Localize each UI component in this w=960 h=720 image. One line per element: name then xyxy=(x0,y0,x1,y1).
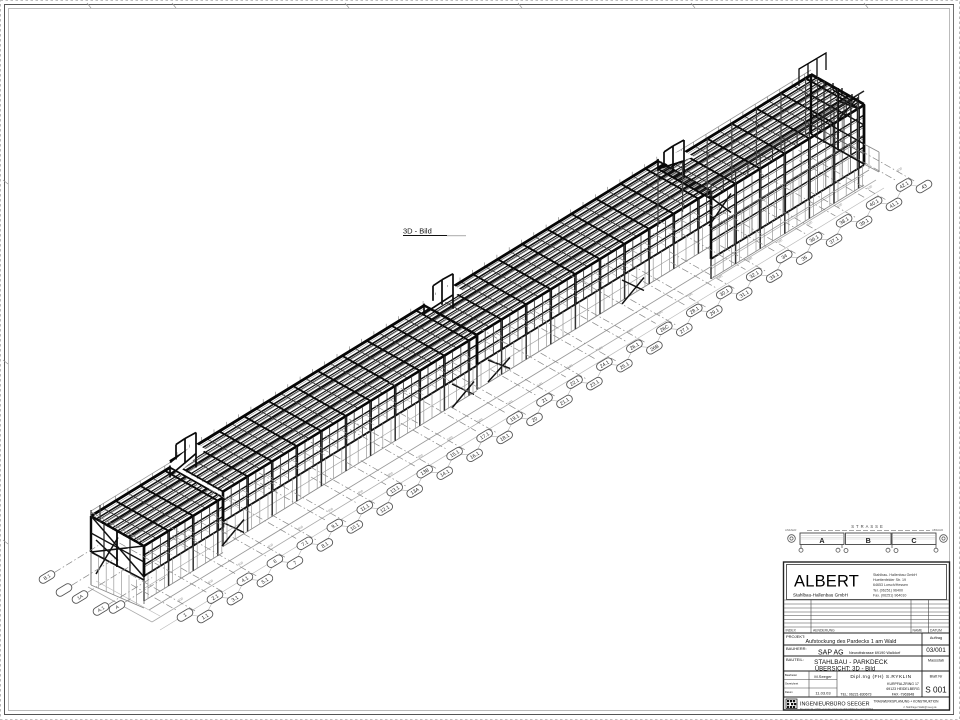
svg-text:ANFAHR: ANFAHR xyxy=(785,528,796,532)
svg-text:KURPFALZRING 17: KURPFALZRING 17 xyxy=(887,682,919,686)
svg-text:Bessemer Str. 27/93 Langendies: Bessemer Str. 27/93 Langendies Tel/Zuruf… xyxy=(800,707,874,710)
svg-text:Fax. (06251) 964010: Fax. (06251) 964010 xyxy=(873,593,906,597)
svg-text:Dipl.Ing (FH) S.RYKLIN: Dipl.Ing (FH) S.RYKLIN xyxy=(850,674,911,680)
svg-text:BAUTEIL:: BAUTEIL: xyxy=(786,657,804,662)
svg-text:TRAGWERKSPLANUNG + KONSTRUKTIO: TRAGWERKSPLANUNG + KONSTRUKTION xyxy=(874,700,940,704)
svg-text:ÜBERSICHT: 3D - Bild: ÜBERSICHT: 3D - Bild xyxy=(815,666,875,673)
svg-text:A: A xyxy=(819,536,824,545)
svg-text:Bearbeitet: Bearbeitet xyxy=(785,673,797,677)
svg-text:AENDERUNG: AENDERUNG xyxy=(813,629,835,633)
svg-text:Stahlbau- Hallenbau GmbH: Stahlbau- Hallenbau GmbH xyxy=(873,573,917,577)
svg-text:M.Seeger: M.Seeger xyxy=(814,674,832,679)
svg-text:STRASSE: STRASSE xyxy=(851,524,885,529)
svg-text:69123 HEIDELBERG: 69123 HEIDELBERG xyxy=(886,687,920,691)
svg-text:INDEX: INDEX xyxy=(786,629,797,633)
svg-text:11.03.03: 11.03.03 xyxy=(815,691,831,696)
svg-text:Tel. (06251) 96400: Tel. (06251) 96400 xyxy=(873,588,903,592)
svg-text:Blatt Nr: Blatt Nr xyxy=(930,675,943,679)
svg-text:Neurottstrasse 69190 Walldorf: Neurottstrasse 69190 Walldorf xyxy=(849,651,901,655)
svg-text:2. Stahltrager Statik@t seeg.d: 2. Stahltrager Statik@t seeg.de xyxy=(903,706,937,709)
svg-text:Datum: Datum xyxy=(785,690,793,694)
svg-text:03/001: 03/001 xyxy=(926,647,946,654)
svg-text:Aufstockung des Pardecks 1 am: Aufstockung des Pardecks 1 am Wald xyxy=(806,639,897,645)
svg-text:TEL: 06221-830673: TEL: 06221-830673 xyxy=(841,692,872,696)
svg-text:STAHLBAU - PARKDECK: STAHLBAU - PARKDECK xyxy=(814,659,888,666)
svg-text:ALBERT: ALBERT xyxy=(794,573,859,591)
svg-text:PROJEKT:: PROJEKT: xyxy=(786,634,805,639)
svg-text:NAME: NAME xyxy=(913,629,924,633)
svg-text:Stahlbau-Hallenbau GmbH: Stahlbau-Hallenbau GmbH xyxy=(793,593,848,598)
svg-text:FAX -7963848: FAX -7963848 xyxy=(892,692,914,696)
svg-text:BAUHERR:: BAUHERR: xyxy=(786,646,807,651)
svg-text:DATUM: DATUM xyxy=(930,629,942,633)
svg-text:S 001: S 001 xyxy=(925,686,947,695)
svg-text:SAP AG: SAP AG xyxy=(818,650,844,657)
svg-text:INGENIEURBÜRO SEEGER: INGENIEURBÜRO SEEGER xyxy=(800,701,870,708)
svg-text:B: B xyxy=(866,536,871,545)
svg-text:64653 Lorsch/Hessen: 64653 Lorsch/Hessen xyxy=(873,583,908,587)
svg-text:Huettenfelder Str. 19: Huettenfelder Str. 19 xyxy=(873,578,906,582)
svg-text:ABFAHR: ABFAHR xyxy=(932,528,943,532)
svg-text:Massstab: Massstab xyxy=(928,659,944,663)
svg-text:C: C xyxy=(911,536,916,545)
svg-text:Auftrag: Auftrag xyxy=(930,636,942,640)
svg-text:3D - Bild: 3D - Bild xyxy=(403,227,432,236)
svg-text:Gezeichnet: Gezeichnet xyxy=(785,682,798,686)
